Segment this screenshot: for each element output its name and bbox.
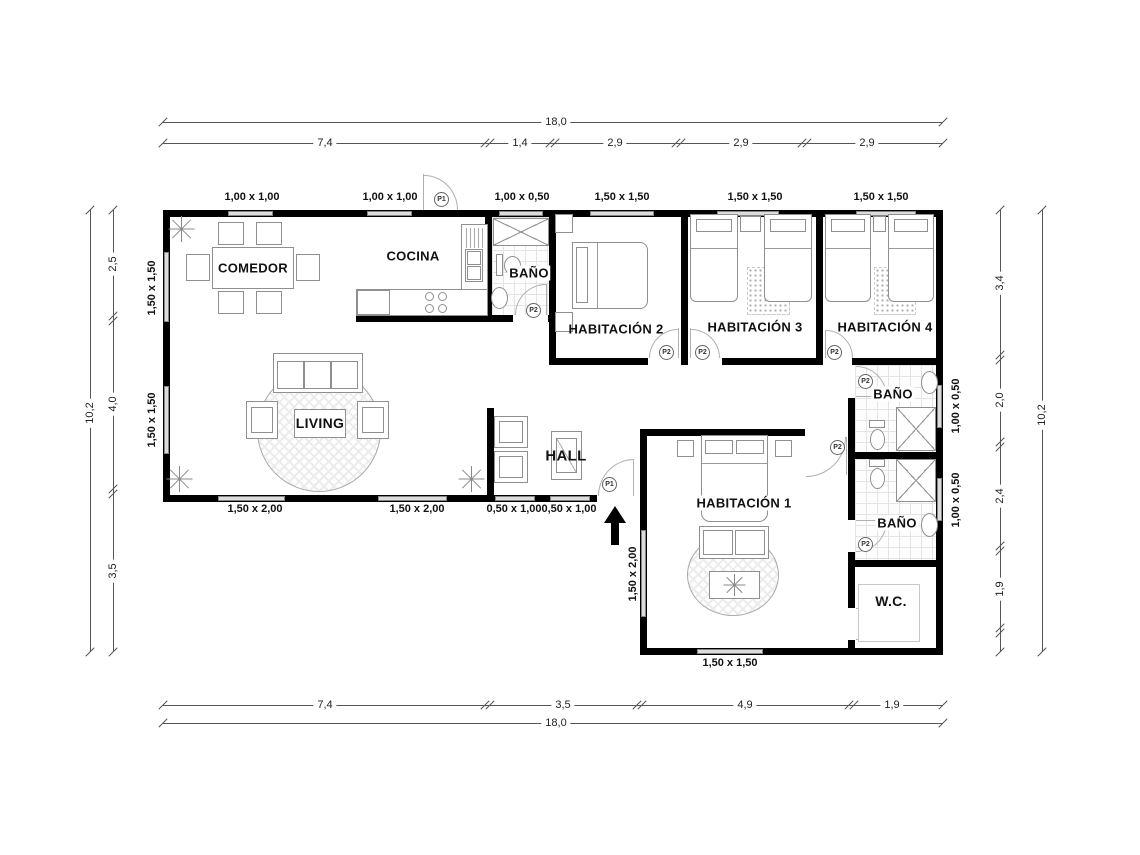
door-tag-p2: P2	[695, 345, 710, 360]
dining-chair	[218, 222, 244, 245]
room-label-comedor: COMEDOR	[218, 261, 288, 276]
dim-label: 2,4	[994, 484, 1006, 507]
fridge	[357, 290, 390, 315]
window	[218, 496, 285, 501]
window-size-label: 1,50 x 1,50	[702, 657, 757, 669]
window-size-label: 0,50 x 1,00	[541, 503, 596, 515]
bed-fold-line	[691, 248, 737, 249]
wall	[549, 210, 556, 365]
door-tag-p2: P2	[830, 440, 845, 455]
bench-cushion	[703, 530, 733, 555]
bathroom-sink	[921, 371, 938, 394]
wall	[681, 210, 688, 365]
bed-fold-line	[702, 463, 767, 464]
toilet-tank	[869, 420, 885, 428]
door-arc	[598, 459, 634, 496]
dim-label: 4,0	[107, 392, 119, 415]
window-size-label: 1,50 x 1,50	[594, 191, 649, 203]
pillow	[894, 219, 928, 232]
window-size-label: 1,50 x 2,00	[389, 503, 444, 515]
stove-burner	[438, 292, 447, 301]
floor-plan: 18,0 7,4 1,4 2,9 2,9 2,9 7,4 3,5 4,9 1,9…	[0, 0, 1140, 855]
sofa-cushion	[304, 361, 331, 389]
window	[228, 211, 273, 216]
dim-label-top-total: 18,0	[541, 116, 570, 128]
door-leaf	[546, 284, 547, 315]
room-label-cocina: COCINA	[386, 249, 439, 264]
door-tag-p1: P1	[602, 477, 617, 492]
dining-chair	[256, 291, 282, 314]
kitchen-sink-bowl	[467, 266, 481, 280]
window-size-label: 1,00 x 1,00	[362, 191, 417, 203]
window	[550, 496, 590, 501]
room-label-habitacion2: HABITACIÓN 2	[568, 322, 663, 337]
bed-fold-line	[889, 248, 933, 249]
bed-fold-line	[597, 243, 598, 308]
window-size-label: 1,00 x 1,00	[224, 191, 279, 203]
bathroom-sink	[491, 287, 508, 309]
window	[495, 496, 535, 501]
door-tag-p2: P2	[526, 303, 541, 318]
stove-burner	[425, 304, 434, 313]
hall-chair-cushion	[499, 421, 523, 443]
toilet-bowl	[870, 468, 885, 489]
dim-label: 2,5	[107, 252, 119, 275]
window-size-label: 1,00 x 0,50	[950, 378, 962, 433]
dim-label: 3,4	[994, 271, 1006, 294]
dim-label: 3,5	[551, 699, 574, 711]
door-tag-p2: P2	[827, 345, 842, 360]
stove-burner	[438, 304, 447, 313]
window-size-label: 1,50 x 1,50	[146, 260, 158, 315]
dim-line-left-segments	[113, 210, 114, 652]
bathroom-sink	[921, 513, 938, 537]
wall	[848, 640, 855, 655]
sofa-cushion	[277, 361, 304, 389]
wall	[640, 648, 943, 655]
plant-icon	[723, 574, 745, 596]
armchair-cushion	[362, 407, 384, 433]
room-label-habitacion1: HABITACIÓN 1	[694, 496, 793, 511]
wall	[855, 560, 943, 567]
kitchen-drainer	[466, 228, 484, 248]
toilet-tank	[496, 254, 503, 276]
room-label-bano-top: BAÑO	[507, 266, 550, 281]
window	[937, 478, 942, 521]
dim-label: 2,9	[855, 137, 878, 149]
dining-chair	[296, 254, 320, 281]
pillow	[736, 440, 764, 454]
toilet-tank	[869, 459, 885, 467]
room-label-living: LIVING	[296, 415, 344, 431]
plant-icon	[168, 216, 194, 242]
dining-chair	[218, 291, 244, 314]
nightstand	[677, 440, 694, 457]
window	[590, 211, 654, 216]
shower	[896, 459, 936, 502]
window	[164, 386, 169, 454]
window-size-label: 0,50 x 1,00	[486, 503, 541, 515]
window	[499, 211, 543, 216]
door-tag-p2: P2	[858, 537, 873, 552]
room-label-hall: HALL	[545, 448, 586, 465]
nightstand	[775, 440, 792, 457]
dim-label: 1,9	[880, 699, 903, 711]
door-tag-p2: P2	[659, 345, 674, 360]
window	[697, 649, 763, 654]
dim-label: 2,0	[994, 388, 1006, 411]
window-size-label: 1,00 x 0,50	[494, 191, 549, 203]
wall	[816, 210, 823, 365]
nightstand	[555, 214, 573, 233]
door-tag-p1: P1	[434, 192, 449, 207]
entry-arrow-shaft	[611, 522, 619, 545]
dim-label: 7,4	[313, 699, 336, 711]
dim-label: 7,4	[313, 137, 336, 149]
dim-label-bottom-total: 18,0	[541, 717, 570, 729]
door-leaf	[846, 437, 847, 475]
entry-arrow	[604, 506, 626, 523]
dim-label: 4,9	[733, 699, 756, 711]
window	[641, 530, 646, 617]
dim-label: 1,4	[508, 137, 531, 149]
bathtub	[493, 218, 549, 246]
armchair-cushion	[251, 407, 273, 433]
pillow	[696, 219, 732, 232]
plant-icon	[458, 466, 484, 492]
nightstand	[873, 216, 886, 232]
pillow	[831, 219, 865, 232]
wall	[852, 358, 943, 365]
room-label-habitacion4: HABITACIÓN 4	[837, 320, 932, 335]
hall-chair-cushion	[499, 456, 523, 478]
wall	[487, 408, 494, 502]
pillow	[576, 247, 588, 303]
dim-label: 3,5	[107, 559, 119, 582]
dim-line-left-total	[90, 210, 91, 652]
wall	[848, 552, 855, 608]
window-size-label: 1,50 x 1,50	[146, 392, 158, 447]
window-size-label: 1,50 x 2,00	[227, 503, 282, 515]
bench-cushion	[735, 530, 765, 555]
bed-fold-line	[826, 248, 870, 249]
stove-burner	[425, 292, 434, 301]
room-label-bano-upper: BAÑO	[871, 387, 914, 402]
wall	[556, 358, 648, 365]
wall	[936, 210, 943, 655]
pillow	[770, 219, 806, 232]
toilet-bowl	[870, 429, 885, 450]
pillow	[705, 440, 733, 454]
bed-fold-line	[765, 248, 811, 249]
dim-label: 2,9	[729, 137, 752, 149]
door-leaf	[678, 328, 679, 358]
wall	[848, 398, 855, 520]
nightstand	[740, 216, 761, 232]
window	[378, 496, 447, 501]
dining-chair	[186, 254, 210, 281]
window	[164, 252, 169, 322]
kitchen-sink-bowl	[467, 251, 481, 265]
shower	[896, 407, 936, 451]
dim-label: 2,9	[603, 137, 626, 149]
window-size-label: 1,50 x 2,00	[627, 546, 639, 601]
room-label-habitacion3: HABITACIÓN 3	[707, 320, 802, 335]
dim-label-left-total: 10,2	[84, 398, 96, 427]
window	[367, 211, 412, 216]
dim-label: 1,9	[994, 577, 1006, 600]
dim-line-right-total	[1042, 210, 1043, 652]
dim-label-right-total: 10,2	[1036, 400, 1048, 429]
window-size-label: 1,50 x 1,50	[727, 191, 782, 203]
window	[937, 385, 942, 428]
wall	[855, 452, 943, 459]
wall	[722, 358, 816, 365]
dining-chair	[256, 222, 282, 245]
window-size-label: 1,50 x 1,50	[853, 191, 908, 203]
plant-icon	[166, 466, 192, 492]
sofa-cushion	[331, 361, 358, 389]
room-label-wc: W.C.	[875, 593, 907, 609]
room-label-bano-lower: BAÑO	[875, 516, 918, 531]
window-size-label: 1,00 x 0,50	[950, 472, 962, 527]
